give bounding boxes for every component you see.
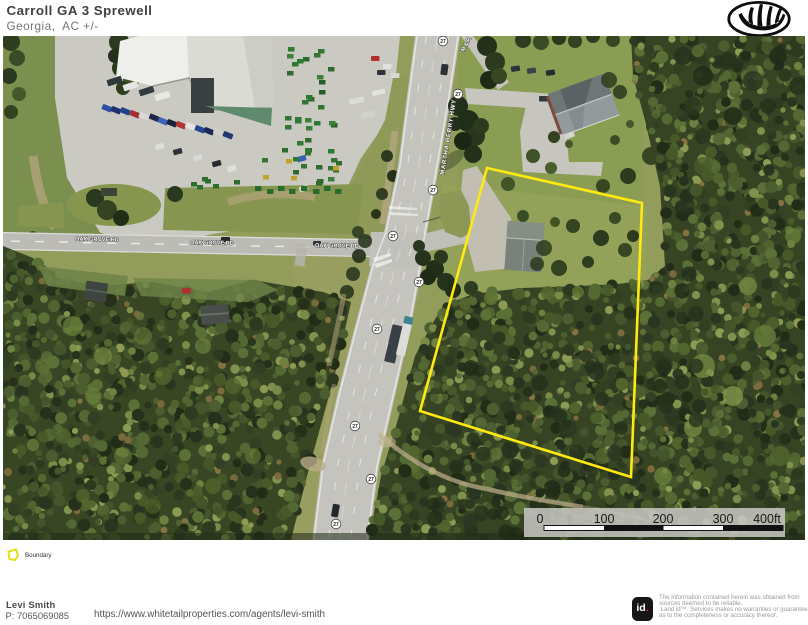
svg-text:27: 27 (440, 39, 446, 45)
svg-text:200: 200 (653, 512, 674, 526)
svg-text:27: 27 (368, 477, 374, 483)
svg-text:27: 27 (333, 522, 339, 528)
svg-text:27: 27 (455, 92, 461, 98)
svg-text:0: 0 (537, 512, 544, 526)
svg-text:100: 100 (594, 512, 615, 526)
svg-text:27: 27 (430, 188, 436, 194)
svg-text:27: 27 (374, 327, 380, 333)
svg-text:27: 27 (390, 234, 396, 240)
svg-text:OAK GROVE RD: OAK GROVE RD (75, 237, 119, 244)
svg-text:OAK GROVE RD: OAK GROVE RD (190, 240, 234, 247)
svg-text:OAK GROVE RD: OAK GROVE RD (315, 243, 359, 250)
svg-text:400ft: 400ft (753, 512, 781, 526)
svg-text:27: 27 (352, 424, 358, 430)
svg-text:300: 300 (713, 512, 734, 526)
svg-text:27: 27 (416, 280, 422, 286)
